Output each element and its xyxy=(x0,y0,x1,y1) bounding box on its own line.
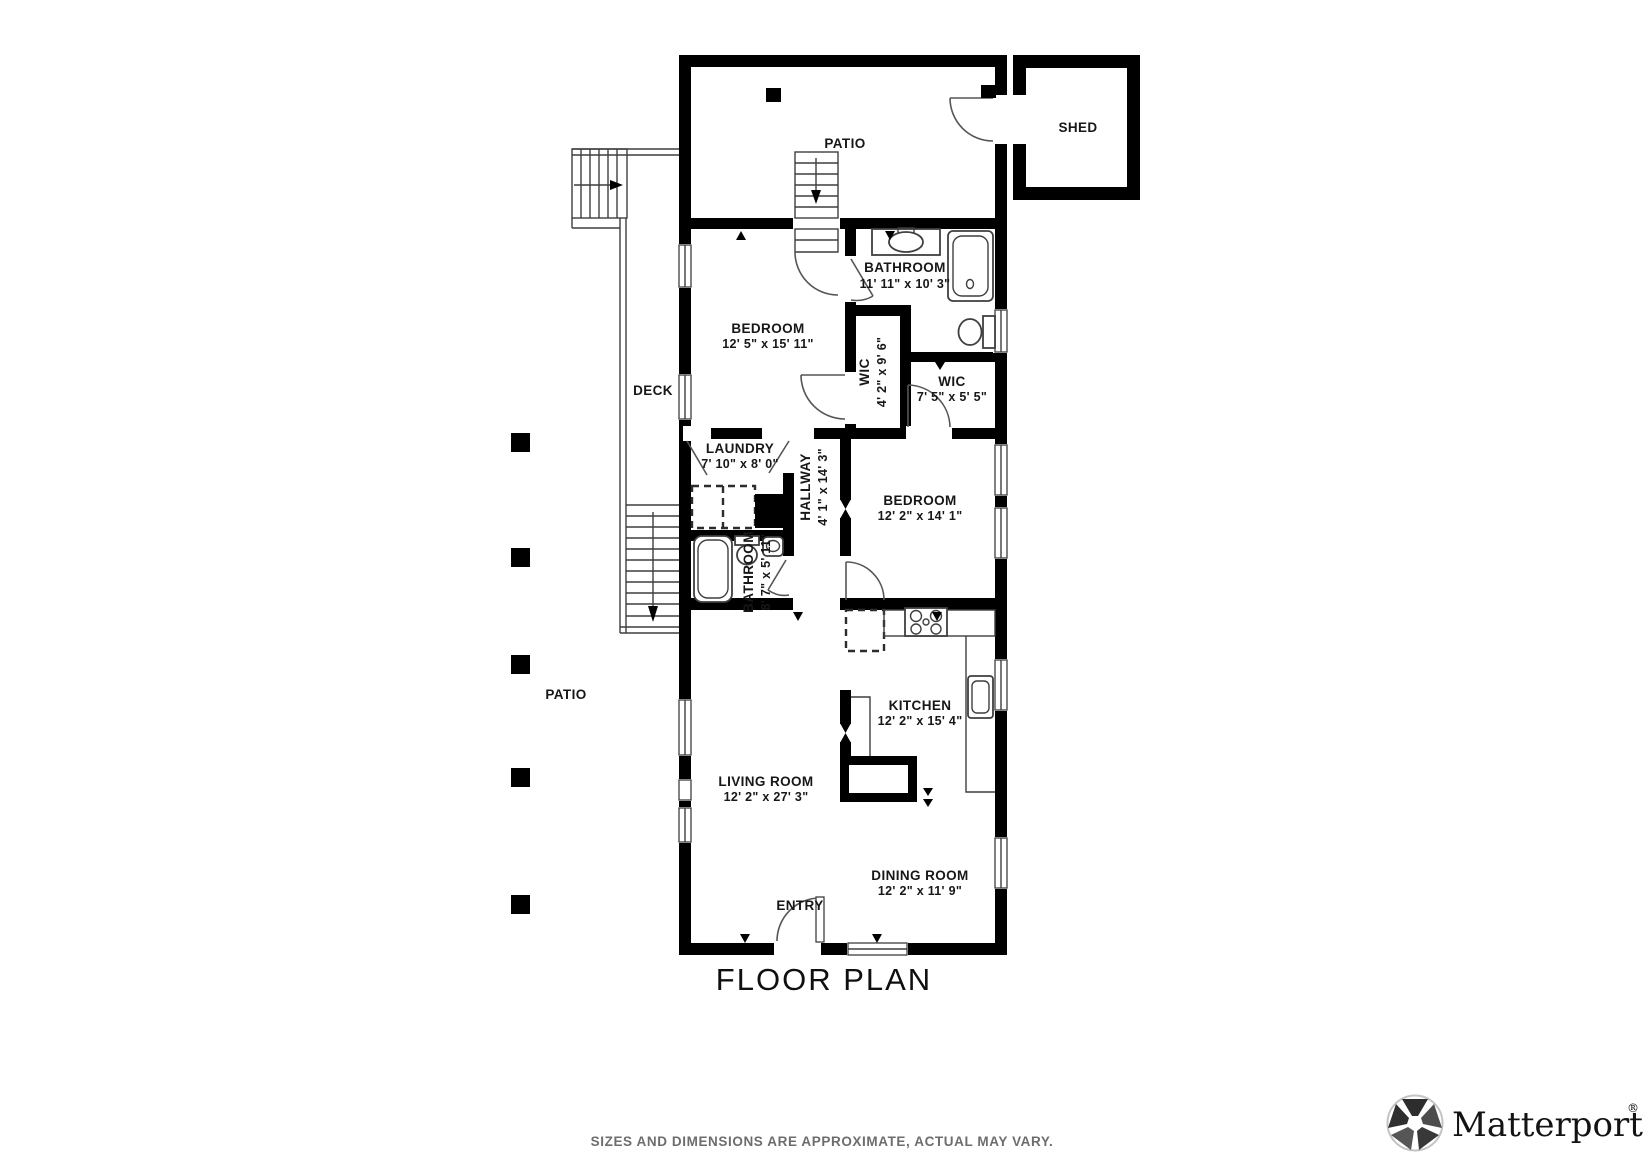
window-icon xyxy=(679,780,691,800)
room-label-patio-top: PATIO xyxy=(824,136,865,151)
stairs-direction-arrow xyxy=(648,606,658,622)
bathtub-icon xyxy=(694,536,732,602)
kitchen-island xyxy=(845,761,913,798)
disclaimer-text: SIZES AND DIMENSIONS ARE APPROXIMATE, AC… xyxy=(591,1134,1054,1149)
room-label-kitchen: KITCHEN xyxy=(889,698,952,713)
sink-icon xyxy=(968,676,993,718)
matterport-wordmark: Matterport xyxy=(1452,1105,1643,1145)
room-dims-wic-right: 7' 5" x 5' 5" xyxy=(917,390,987,404)
stairs-icon xyxy=(626,505,679,622)
room-label-laundry: LAUNDRY xyxy=(706,441,774,456)
window-icon xyxy=(995,310,1007,352)
room-label-hallway: HALLWAY xyxy=(798,453,813,521)
room-label-dining-room: DINING ROOM xyxy=(871,868,968,883)
door-icon xyxy=(846,562,884,600)
window-icon xyxy=(995,660,1007,710)
toilet-icon xyxy=(959,316,996,348)
room-dims-laundry: 7' 10" x 8' 0" xyxy=(701,457,779,471)
window-icon xyxy=(848,943,907,955)
door-icon xyxy=(801,375,845,419)
floor-plan-page: PATIO SHED BATHROOM 11' 11" x 10' 3" BED… xyxy=(0,0,1647,1164)
room-label-bedroom-top: BEDROOM xyxy=(731,321,804,336)
room-dims-hallway: 4' 1" x 14' 3" xyxy=(816,448,830,526)
window-icon xyxy=(679,245,691,287)
room-label-wic-right: WIC xyxy=(938,374,965,389)
matterport-pinwheel-icon xyxy=(1388,1096,1443,1151)
patio-stairs xyxy=(795,152,838,252)
stairs-icon xyxy=(795,152,838,218)
support-post-icon xyxy=(511,768,530,787)
room-dims-dining-room: 12' 2" x 11' 9" xyxy=(878,884,962,898)
room-dims-bathroom-mid: 8' 7" x 5' 11" xyxy=(759,534,773,611)
room-label-living-room: LIVING ROOM xyxy=(718,774,813,789)
window-icon xyxy=(995,445,1007,495)
stairs-icon xyxy=(572,149,627,218)
sink-icon xyxy=(872,228,940,255)
room-label-bathroom-mid: BATHROOM xyxy=(741,531,756,613)
window-icon xyxy=(679,808,691,842)
room-dims-bedroom-mid: 12' 2" x 14' 1" xyxy=(878,509,963,523)
support-post-icon xyxy=(511,433,530,452)
bathtub-icon xyxy=(948,231,993,301)
support-post-icon xyxy=(511,548,530,567)
support-post-icon xyxy=(981,85,996,98)
room-label-shed: SHED xyxy=(1058,120,1097,135)
room-label-deck: DECK xyxy=(633,383,673,398)
room-dims-living-room: 12' 2" x 27' 3" xyxy=(724,790,809,804)
refrigerator-icon xyxy=(846,610,884,651)
window-icon xyxy=(679,700,691,755)
room-dims-bathroom-top: 11' 11" x 10' 3" xyxy=(860,277,951,291)
registered-trademark-symbol: ® xyxy=(1627,1101,1639,1115)
matterport-logo: Matterport ® xyxy=(1388,1096,1644,1151)
room-label-bathroom-top: BATHROOM xyxy=(864,260,946,275)
room-dims-kitchen: 12' 2" x 15' 4" xyxy=(878,714,963,728)
room-dims-wic-left: 4' 2" x 9' 6" xyxy=(875,337,889,407)
window-icon xyxy=(995,838,1007,888)
page-title: FLOOR PLAN xyxy=(716,962,932,997)
room-dims-bedroom-top: 12' 5" x 15' 11" xyxy=(722,337,813,351)
door-icon xyxy=(795,252,838,295)
stairs-direction-arrow xyxy=(811,190,821,204)
room-label-wic-left: WIC xyxy=(857,358,872,385)
room-label-bedroom-mid: BEDROOM xyxy=(883,493,956,508)
chimney-block xyxy=(755,494,790,528)
door-icon xyxy=(950,98,993,141)
support-post-icon xyxy=(511,895,530,914)
room-label-patio-left: PATIO xyxy=(545,687,586,702)
window-icon xyxy=(679,375,691,419)
floor-plan-canvas: PATIO SHED BATHROOM 11' 11" x 10' 3" BED… xyxy=(0,0,1647,1164)
window-icon xyxy=(995,508,1007,558)
room-label-entry: ENTRY xyxy=(776,898,823,913)
support-post-icon xyxy=(766,88,781,102)
support-post-icon xyxy=(511,655,530,674)
washer-dryer-icon xyxy=(692,486,755,528)
